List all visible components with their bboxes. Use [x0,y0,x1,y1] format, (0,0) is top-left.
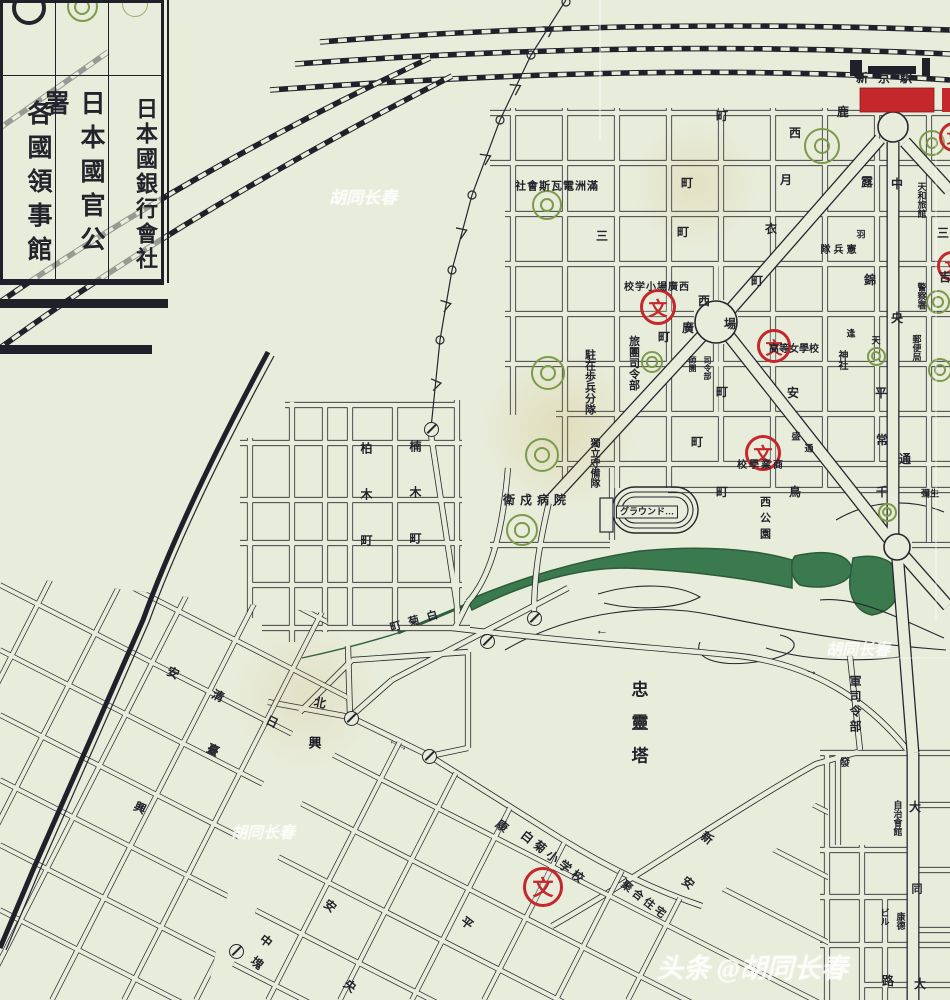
map-label: 千 [876,486,888,498]
map-label: 通 [804,445,813,454]
watermark-text: 胡同长春 [329,184,397,209]
map-label: 鳥 [789,486,801,498]
government-office-symbol [926,290,950,314]
government-office-symbol [641,351,663,373]
map-label: 西公園 [759,496,770,544]
map-label: 三 [937,227,949,239]
legend-label: 日本國官公署 [56,76,108,279]
map-label: 隊兵憲 [821,246,860,256]
government-office-symbol [506,514,538,546]
map-label: 天和旅館 [917,182,926,218]
map-label: 吉 [939,271,950,283]
map-label: 警察署 [917,283,926,310]
map-label: ← [595,623,609,637]
map-label: 衣 [765,223,777,235]
map-label: 司令部 [703,356,711,380]
map-label: 大 [914,978,926,990]
map-label: 通 [899,453,911,465]
south-plaza [884,534,910,560]
map-label: 安 [787,387,799,399]
map-label: 町 [681,177,693,189]
map-label: 中 [891,178,903,190]
legend-label: 日本國銀行會社 [109,76,161,279]
map-label: 師團 [688,356,696,372]
map-label: 羽 [856,231,865,240]
legend-item-consulates: 各國領事館 [3,3,56,279]
government-office-symbol [525,438,559,472]
government-office-symbol [531,356,565,390]
map-label: 町 [716,110,728,122]
station-building [850,58,950,112]
map-label: 康德 [896,912,905,930]
map-label: 町 [677,226,689,238]
government-office-symbol [878,503,897,522]
watermark-text: 头条 @胡同长春 [656,947,847,986]
map-label: 發 [840,759,850,769]
map-label: 常 [876,434,888,446]
historical-map: 各國領事館 日本國官公署 日本國銀行會社 新京駅町鹿西社會斯瓦電洲滿月露中天和旅… [0,0,950,1000]
park-green-area [792,553,852,587]
government-office-symbol [804,128,840,164]
government-office-symbol [532,190,562,220]
map-label: グラウンド… [616,506,678,519]
map-label: 同 [912,885,923,896]
map-label: 校学小場廣西 [624,283,690,293]
map-label: 神社 [836,350,846,370]
tram-stop-symbol [229,944,244,959]
watermark-text: 胡同长春 [231,819,295,843]
watermark-text: 胡同长春 [826,636,890,660]
park-green-area [468,548,792,610]
map-label: 校學業商 [737,461,785,471]
map-label: 新京駅 [856,72,922,84]
map-label: 廣 [682,322,694,334]
map-label: 軍司令部 [849,675,861,735]
legend-item-government-offices: 日本國官公署 [56,3,109,279]
tram-stop-symbol [422,749,437,764]
map-label: 高等女學校 [769,345,819,355]
map-label: 郵便局 [912,335,921,362]
map-label: 鹿 [837,106,849,118]
map-label: 天 [871,337,880,346]
map-label: 町 [658,331,670,343]
tram-stop-symbol [424,422,439,437]
map-label: 柏木町 [360,442,372,580]
consulate-circle-icon [12,3,46,25]
map-label: 町 [716,486,728,498]
map-label: 三 [596,230,608,242]
government-office-symbol [867,347,886,366]
map-label: 忠靈塔 [630,681,647,780]
map-label: 興 [308,737,321,750]
government-office-symbol [928,358,950,382]
map-label: 北 [313,696,327,710]
map-label: 町 [691,436,703,448]
map-label: 西 [789,127,801,139]
map-label: 盛 [791,433,800,442]
school-stamp-icon: 文 [640,289,676,325]
tram-stop-symbol [344,711,359,726]
map-label: 獨立守備隊 [588,438,598,488]
map-label: 彌生 [921,490,939,499]
map-label: 大 [909,801,921,813]
school-stamp-icon: 文 [523,867,563,907]
tram-stop-symbol [480,634,495,649]
map-label: 央 [891,312,903,324]
map-label: 自治會館 [893,800,902,836]
bank-company-circle-icon [122,3,148,17]
map-label: 月 [780,174,792,186]
map-legend: 各國領事館 日本國官公署 日本國銀行會社 [0,0,164,285]
map-label: 路 [882,975,894,987]
map-label: 楠木町 [409,440,421,578]
map-label: 町 [751,275,763,287]
map-label: 平 [875,387,887,399]
map-label: 衛戍病院 [503,494,571,506]
map-label: 社會斯瓦電洲滿 [515,182,599,193]
map-label: 町 [716,386,728,398]
government-office-circle-icon [67,3,98,22]
map-label: 逢 [846,330,855,339]
station-plaza [878,112,908,142]
map-label: 駐在歩兵分隊 [584,349,595,415]
tram-stop-symbol [527,611,542,626]
map-label: ビル [880,908,889,926]
map-label: 錦 [864,274,876,286]
map-label: 西 [698,295,710,307]
map-label: 場 [724,318,736,330]
map-label: 露 [861,176,873,188]
legend-item-banks-companies: 日本國銀行會社 [109,3,161,279]
map-label: 旅團司令部 [628,336,639,391]
